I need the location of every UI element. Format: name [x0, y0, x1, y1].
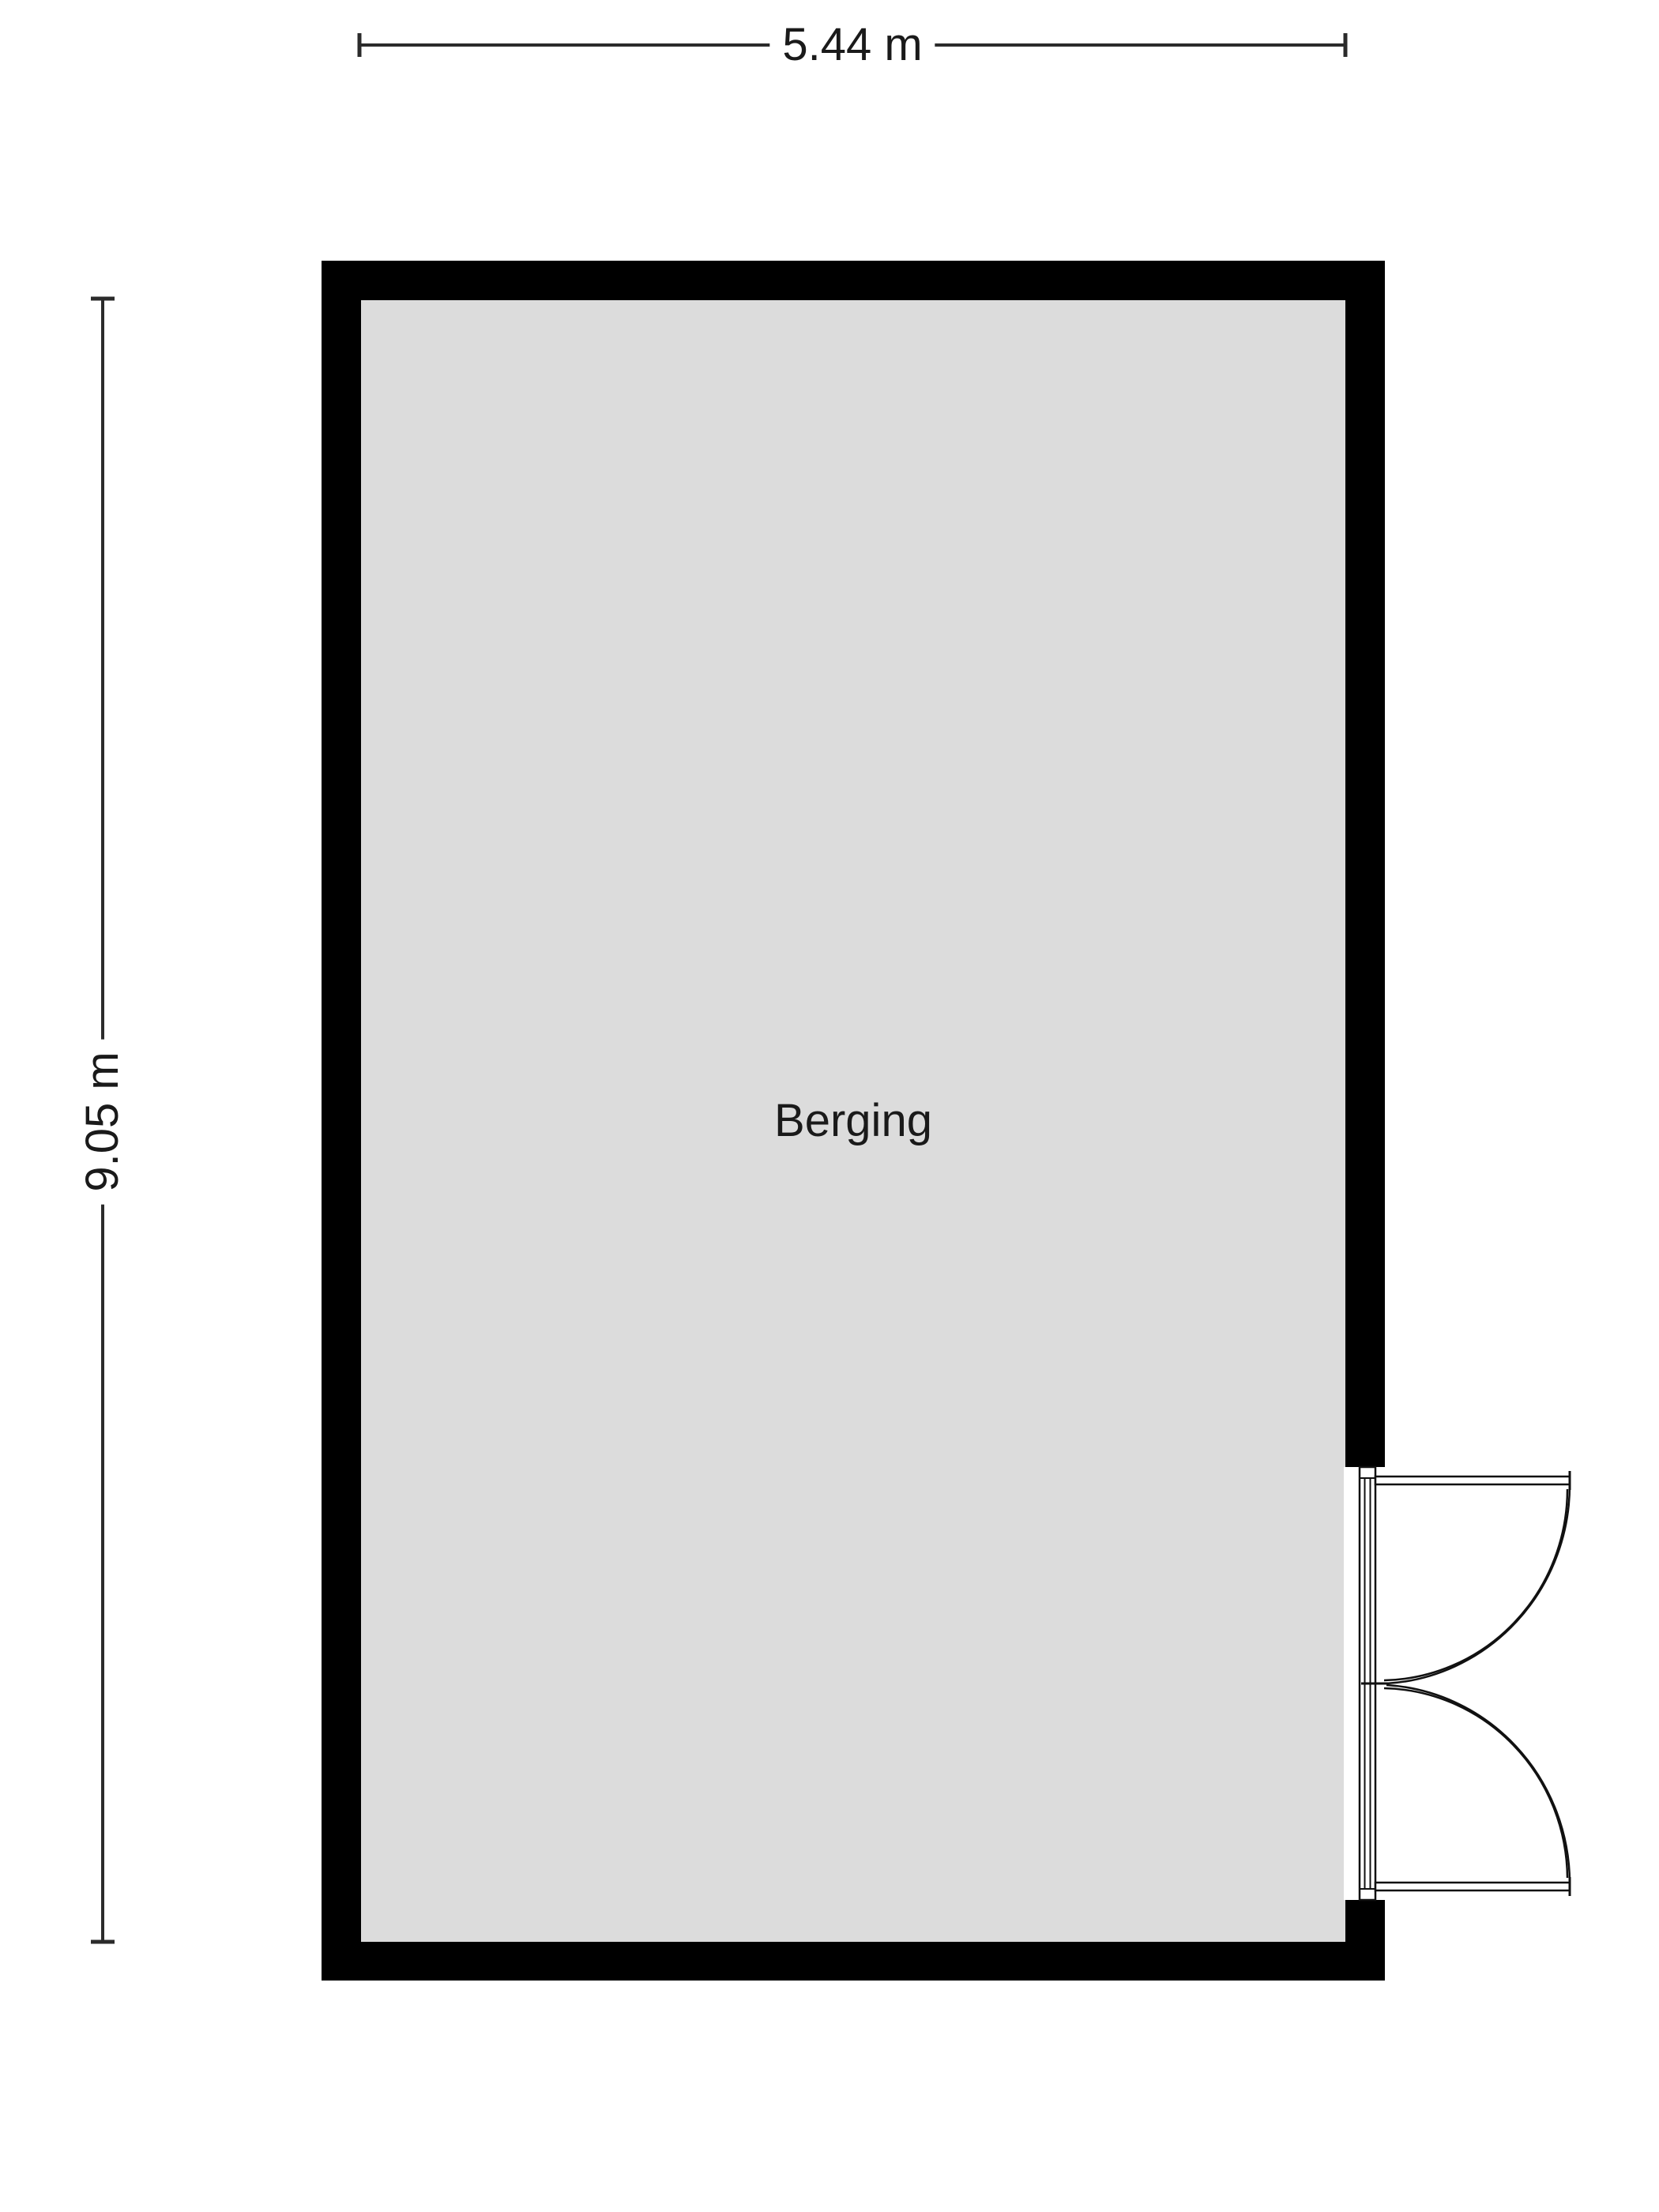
door-swing-arc-bottom-inner: [1384, 1688, 1567, 1878]
door-swing-arc-top-inner: [1384, 1489, 1567, 1680]
dimension-height-label: 9.05 m: [77, 1039, 129, 1204]
dimension-width-label: 5.44 m: [769, 19, 935, 71]
floor-plan-canvas: 5.44 m 9.05 m Berging: [0, 0, 1659, 2212]
door-leaf-top-panel: [1375, 1477, 1570, 1484]
double-door: [1360, 1467, 1570, 1900]
door-leaf-bottom-panel: [1375, 1883, 1570, 1890]
room-label: Berging: [774, 1098, 932, 1144]
